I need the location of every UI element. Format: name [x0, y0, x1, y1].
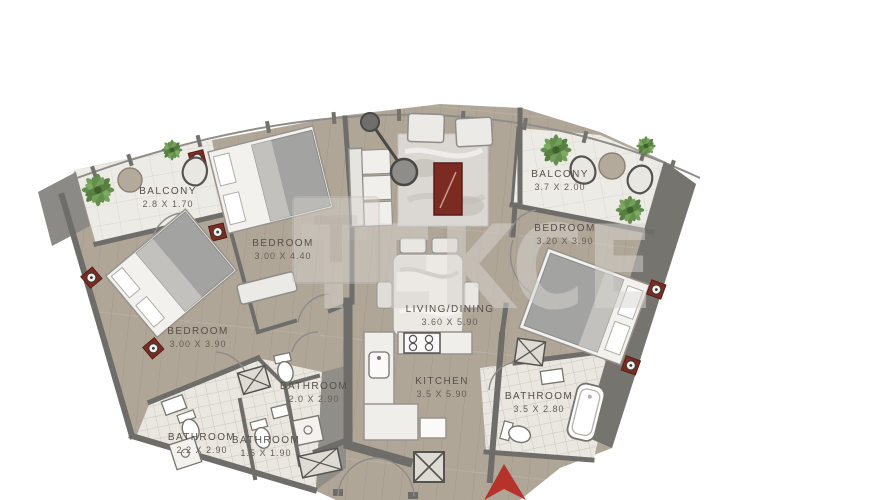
armchair-2: [455, 117, 492, 147]
dims-bedroom-2: 3.00 X 3.90: [169, 339, 226, 349]
dims-kitchen: 3.5 X 5.90: [416, 389, 467, 399]
dims-bedroom-3: 3.20 X 3.90: [536, 236, 593, 246]
dims-balcony-right: 3.7 X 2.00: [534, 182, 585, 192]
dims-bathroom-1: 2.2 X 2.90: [176, 445, 227, 455]
label-bathroom-4: BATHROOM: [505, 391, 573, 402]
dims-bedroom-1: 3.00 X 4.40: [254, 251, 311, 261]
sink-bath-4: [540, 369, 564, 385]
label-bedroom-2: BEDROOM: [167, 326, 228, 337]
dims-bathroom-2: 1.5 X 1.90: [240, 448, 291, 458]
label-balcony-left: BALCONY: [139, 186, 197, 197]
stove: [404, 333, 440, 353]
kitchen-sink: [369, 352, 389, 378]
closet-3: [514, 338, 545, 366]
dims-bathroom-3: 2.0 X 2.90: [288, 394, 339, 404]
label-living-dining: LIVING/DINING: [406, 304, 495, 315]
dims-living-dining: 3.60 X 5.90: [421, 317, 478, 327]
kitchen-island: [420, 418, 446, 438]
floor-plan-page: TEKCE T BALCONY 2.8 X 1.70 BEDROOM 3.00 …: [0, 0, 890, 500]
watermark: TEKCE T: [293, 197, 655, 336]
label-bathroom-1: BATHROOM: [168, 432, 236, 443]
shaft-box: [414, 452, 444, 482]
label-bathroom-2: BATHROOM: [232, 435, 300, 446]
balcony-table-right: [599, 153, 625, 179]
floor-plan-canvas: TEKCE T BALCONY 2.8 X 1.70 BEDROOM 3.00 …: [0, 0, 890, 500]
watermark-logo-letter: T: [314, 204, 358, 278]
dims-balcony-left: 2.8 X 1.70: [142, 199, 193, 209]
armchair-1: [408, 113, 445, 142]
dims-bathroom-4: 3.5 X 2.80: [513, 404, 564, 414]
label-balcony-right: BALCONY: [531, 169, 589, 180]
label-bedroom-3: BEDROOM: [534, 223, 595, 234]
label-kitchen: KITCHEN: [415, 376, 469, 387]
label-bedroom-1: BEDROOM: [252, 238, 313, 249]
label-bathroom-3: BATHROOM: [280, 381, 348, 392]
